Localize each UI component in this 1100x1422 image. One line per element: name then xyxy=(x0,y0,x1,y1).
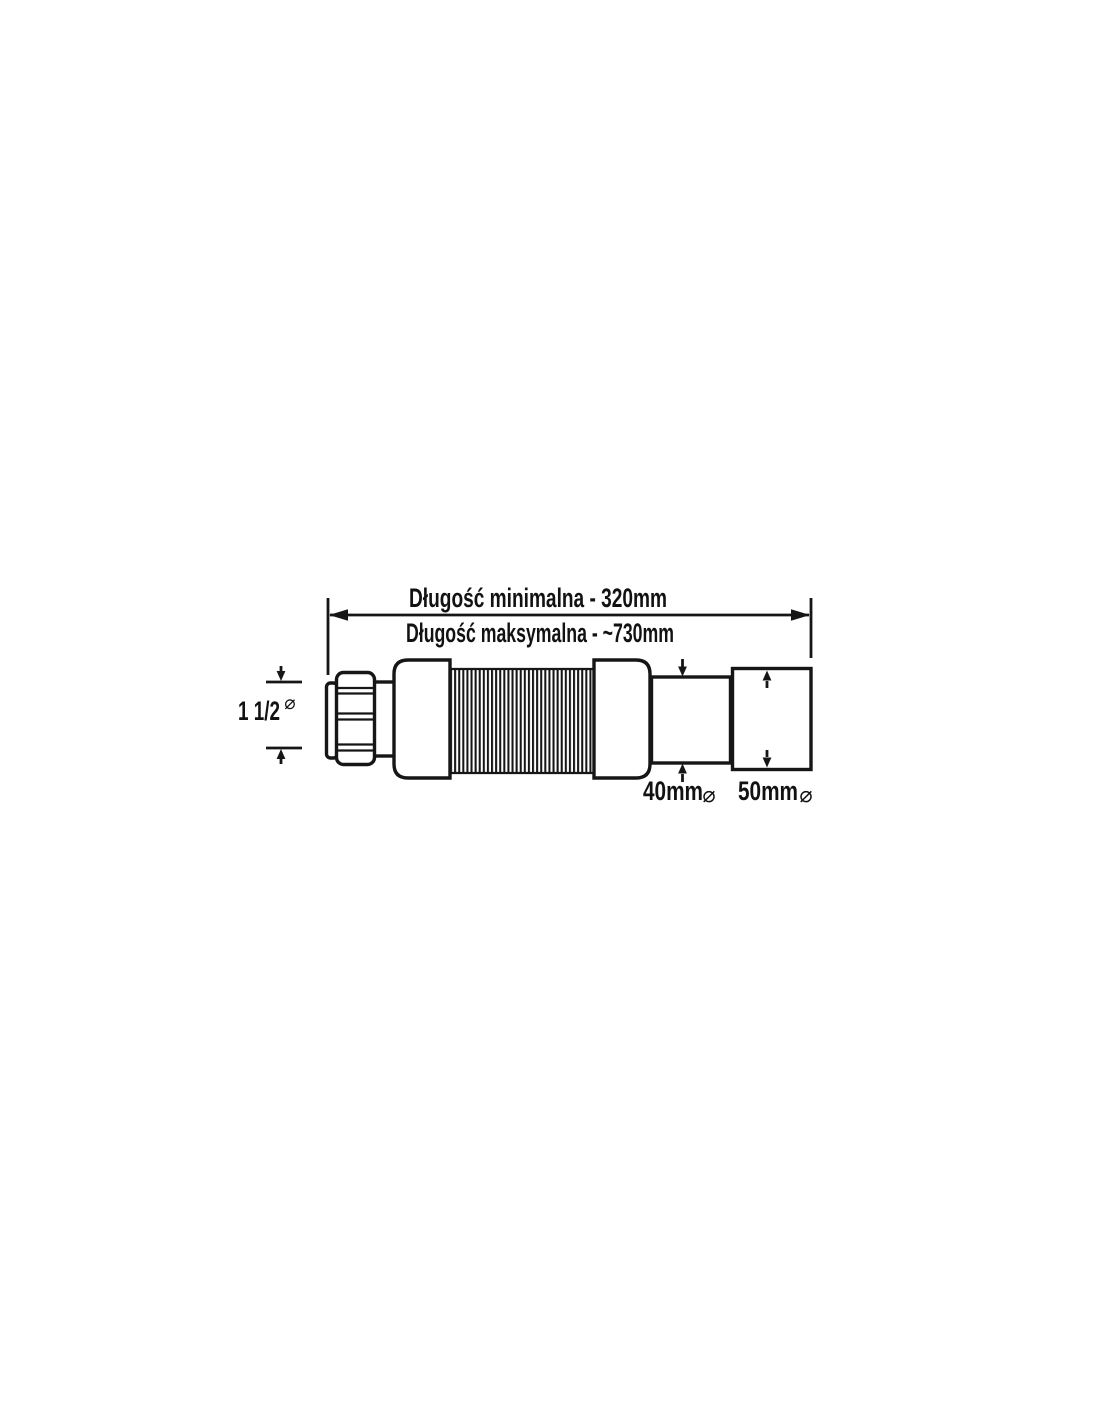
hose-collar-left xyxy=(394,660,450,778)
corrugated-hose xyxy=(450,668,594,774)
min-length-label: Długość minimalna - 320mm xyxy=(409,583,667,613)
outlet-40-arrow-up-icon xyxy=(678,764,687,774)
dimension-arrow-right-icon xyxy=(791,609,810,621)
outlet-40-diameter-symbol: ⌀ xyxy=(702,783,715,808)
outlet-40-label: 40mm xyxy=(643,776,703,806)
hose-collar-right xyxy=(594,660,650,778)
inlet-diameter-annotation: 1 1/2 ⌀ xyxy=(238,666,302,764)
outlet-50-label: 50mm xyxy=(738,776,798,806)
outlet-pipe-40mm xyxy=(652,677,731,763)
inlet-diameter-symbol: ⌀ xyxy=(284,692,295,714)
outlet-pipe-50mm xyxy=(733,669,812,770)
outlet-50-diameter-symbol: ⌀ xyxy=(799,783,812,808)
dimension-arrow-left-icon xyxy=(329,609,348,621)
inlet-arrow-up-icon xyxy=(277,749,286,759)
max-length-label: Długość maksymalna - ~730mm xyxy=(406,618,674,648)
pipe-connector-diagram: Długość minimalna - 320mm Długość maksym… xyxy=(0,0,1100,1422)
drawing-canvas: Długość minimalna - 320mm Długość maksym… xyxy=(0,0,1100,1422)
inlet-arrow-down-icon xyxy=(277,671,286,681)
outlet-40-arrow-down-icon xyxy=(678,667,687,677)
compression-nut xyxy=(337,673,375,765)
product-drawing xyxy=(327,660,812,778)
inlet-size-label: 1 1/2 xyxy=(238,696,280,726)
